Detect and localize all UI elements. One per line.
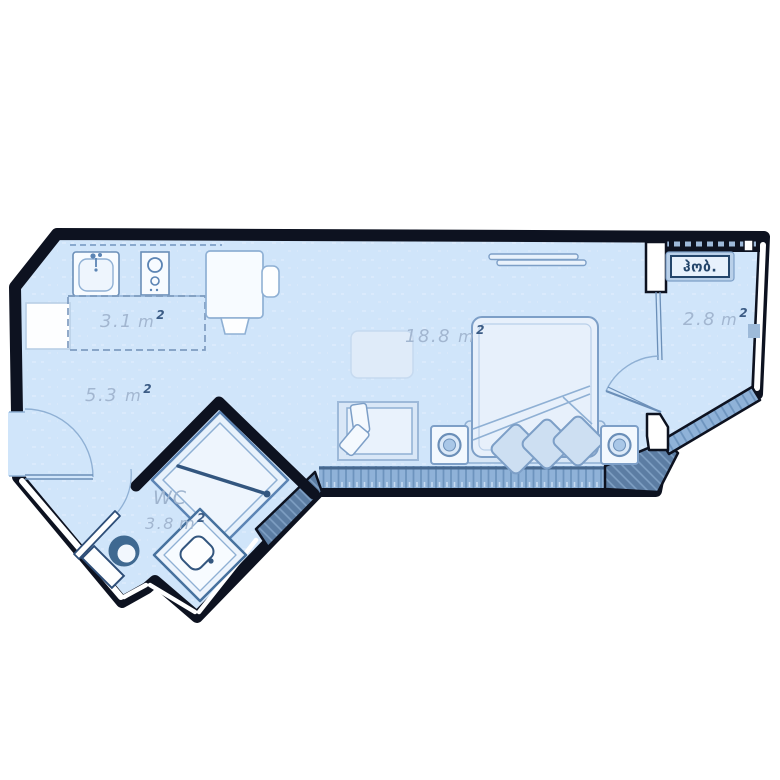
kitchen-sink <box>73 252 119 296</box>
balcony-side-window <box>748 324 760 338</box>
desk-chair <box>262 266 279 297</box>
stool <box>221 318 249 334</box>
floor-plan-stage: ჰობ. 3.1m2 5.3m2 18.8m2 2.8m2 WC 3.8m2 <box>0 0 780 780</box>
ceiling-light <box>489 254 586 266</box>
balcony-name-plate: ჰობ. <box>666 252 734 281</box>
entry-opening <box>8 412 26 476</box>
balcony-name: ჰობ. <box>683 260 717 276</box>
living-room-area: 18.8m2 <box>405 323 486 347</box>
bed <box>465 317 605 476</box>
fridge <box>26 303 70 349</box>
rug-table <box>351 331 413 378</box>
sofa <box>338 402 418 460</box>
cooktop <box>141 252 169 295</box>
nightstand-left <box>431 426 468 464</box>
wc-name: WC <box>153 487 187 509</box>
balcony-separator-wall <box>646 242 666 292</box>
floor-plan-svg: ჰობ. 3.1m2 5.3m2 18.8m2 2.8m2 WC 3.8m2 <box>0 0 780 780</box>
nightstand-right <box>601 426 638 464</box>
